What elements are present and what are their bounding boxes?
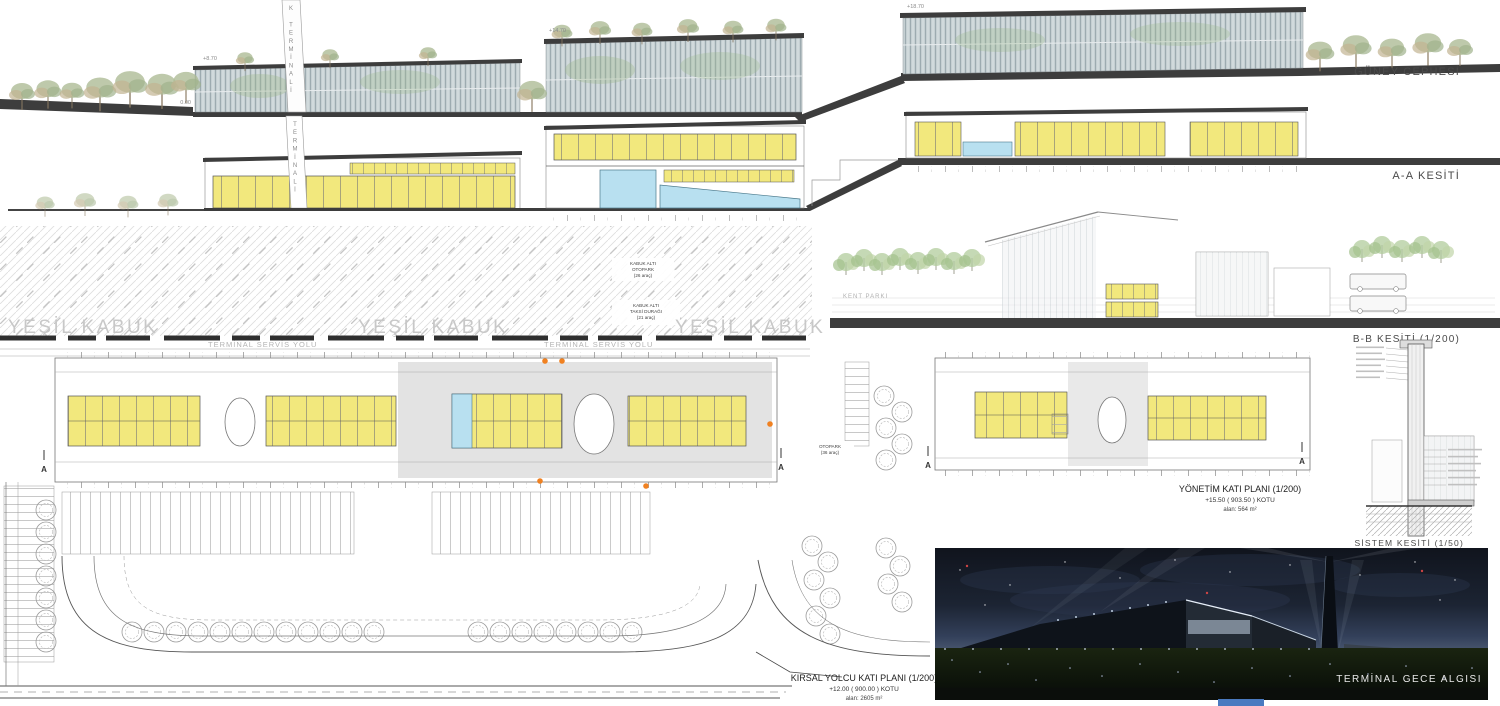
level-mark-000: 0.00 bbox=[180, 100, 191, 106]
caption-yonetim-alan: alan: 564 m² bbox=[1223, 507, 1256, 513]
note-kabuk-otopark-3: (26 araç) bbox=[634, 273, 653, 278]
section-marker-a-yonetim-right: A bbox=[1299, 457, 1305, 466]
label-servis-yolu-1: TERMİNAL SERVİS YOLU bbox=[208, 340, 317, 349]
section-aa-drawing: A-A KESİTİ bbox=[8, 107, 1500, 221]
system-section-drawing: SİSTEM KESİTİ (1/50) bbox=[1355, 340, 1483, 548]
plan-yonetim-drawing: A A YÖNETİM KATI PLANI (1/200) +15.50 ( … bbox=[925, 352, 1310, 513]
plan-kirsal-drawing: A A OTOPARK (36 araç) KIRSAL YOLCU KATI … bbox=[0, 352, 937, 702]
label-terminal-gece-algisi: TERMİNAL GECE ALGISI bbox=[1336, 672, 1482, 685]
label-yesil-kabuk-3: YEŞİL KABUK bbox=[675, 317, 825, 338]
label-servis-yolu-2: TERMİNAL SERVİS YOLU bbox=[544, 340, 653, 349]
label-sistem-kesiti: SİSTEM KESİTİ (1/50) bbox=[1355, 538, 1465, 548]
label-aa-kesiti: A-A KESİTİ bbox=[1392, 169, 1460, 182]
caption-yonetim-title: YÖNETİM KATI PLANI (1/200) bbox=[1179, 484, 1301, 494]
level-mark-870: +8.70 bbox=[203, 56, 217, 62]
label-kent-parki: KENT PARKI bbox=[843, 294, 888, 300]
note-kabuk-taksi-1: KABUK ALTI bbox=[633, 303, 659, 308]
note-otopark-1: OTOPARK bbox=[819, 444, 842, 449]
label-yesil-kabuk-2: YEŞİL KABUK bbox=[358, 317, 508, 338]
section-marker-a-left: A bbox=[41, 465, 47, 474]
section-bb-drawing: KENT PARKI B-B KESİTİ (1/200) bbox=[830, 212, 1500, 345]
roof-plan-drawing: KABUK ALTI OTOPARK (26 araç) KABUK ALTI … bbox=[0, 226, 825, 356]
level-mark-1870: +18.70 bbox=[907, 4, 924, 10]
south-elevation-drawing: +8.70 0.00 +14.70 +18.70 GÜNEY CEPHESİ bbox=[0, 0, 1500, 122]
tower-vertical-text-elevation: K TERMİNALİ bbox=[288, 6, 294, 108]
label-yesil-kabuk-1: YEŞİL KABUK bbox=[8, 317, 158, 338]
note-kabuk-otopark-1: KABUK ALTI bbox=[630, 261, 656, 266]
footer-color-bar bbox=[1218, 699, 1264, 706]
architecture-board-svg: +8.70 0.00 +14.70 +18.70 GÜNEY CEPHESİ A… bbox=[0, 0, 1500, 706]
caption-kirsal-kotu: +12.00 ( 900.00 ) KOTU bbox=[829, 686, 899, 693]
caption-kirsal-title: KIRSAL YOLCU KATI PLANI (1/200) bbox=[791, 673, 937, 683]
note-otopark-2: (36 araç) bbox=[821, 450, 840, 455]
label-guney-cephesi: GÜNEY CEPHESİ bbox=[1354, 65, 1460, 78]
section-marker-a-right: A bbox=[778, 463, 784, 472]
caption-yonetim-kotu: +15.50 ( 903.50 ) KOTU bbox=[1205, 497, 1275, 504]
section-marker-a-yonetim-left: A bbox=[925, 461, 931, 470]
note-kabuk-otopark-2: OTOPARK bbox=[632, 267, 655, 272]
level-mark-1470: +14.70 bbox=[549, 28, 566, 34]
note-kabuk-taksi-2: TAKSİ DURAĞI bbox=[630, 308, 662, 314]
caption-kirsal-alan: alan: 2605 m² bbox=[846, 696, 883, 702]
tower-vertical-text-section: TERMİNALİ bbox=[292, 122, 298, 206]
note-kabuk-taksi-3: (21 araç) bbox=[637, 315, 656, 320]
presentation-board: +8.70 0.00 +14.70 +18.70 GÜNEY CEPHESİ A… bbox=[0, 0, 1500, 706]
night-render: TERMİNAL GECE ALGISI bbox=[935, 548, 1488, 700]
